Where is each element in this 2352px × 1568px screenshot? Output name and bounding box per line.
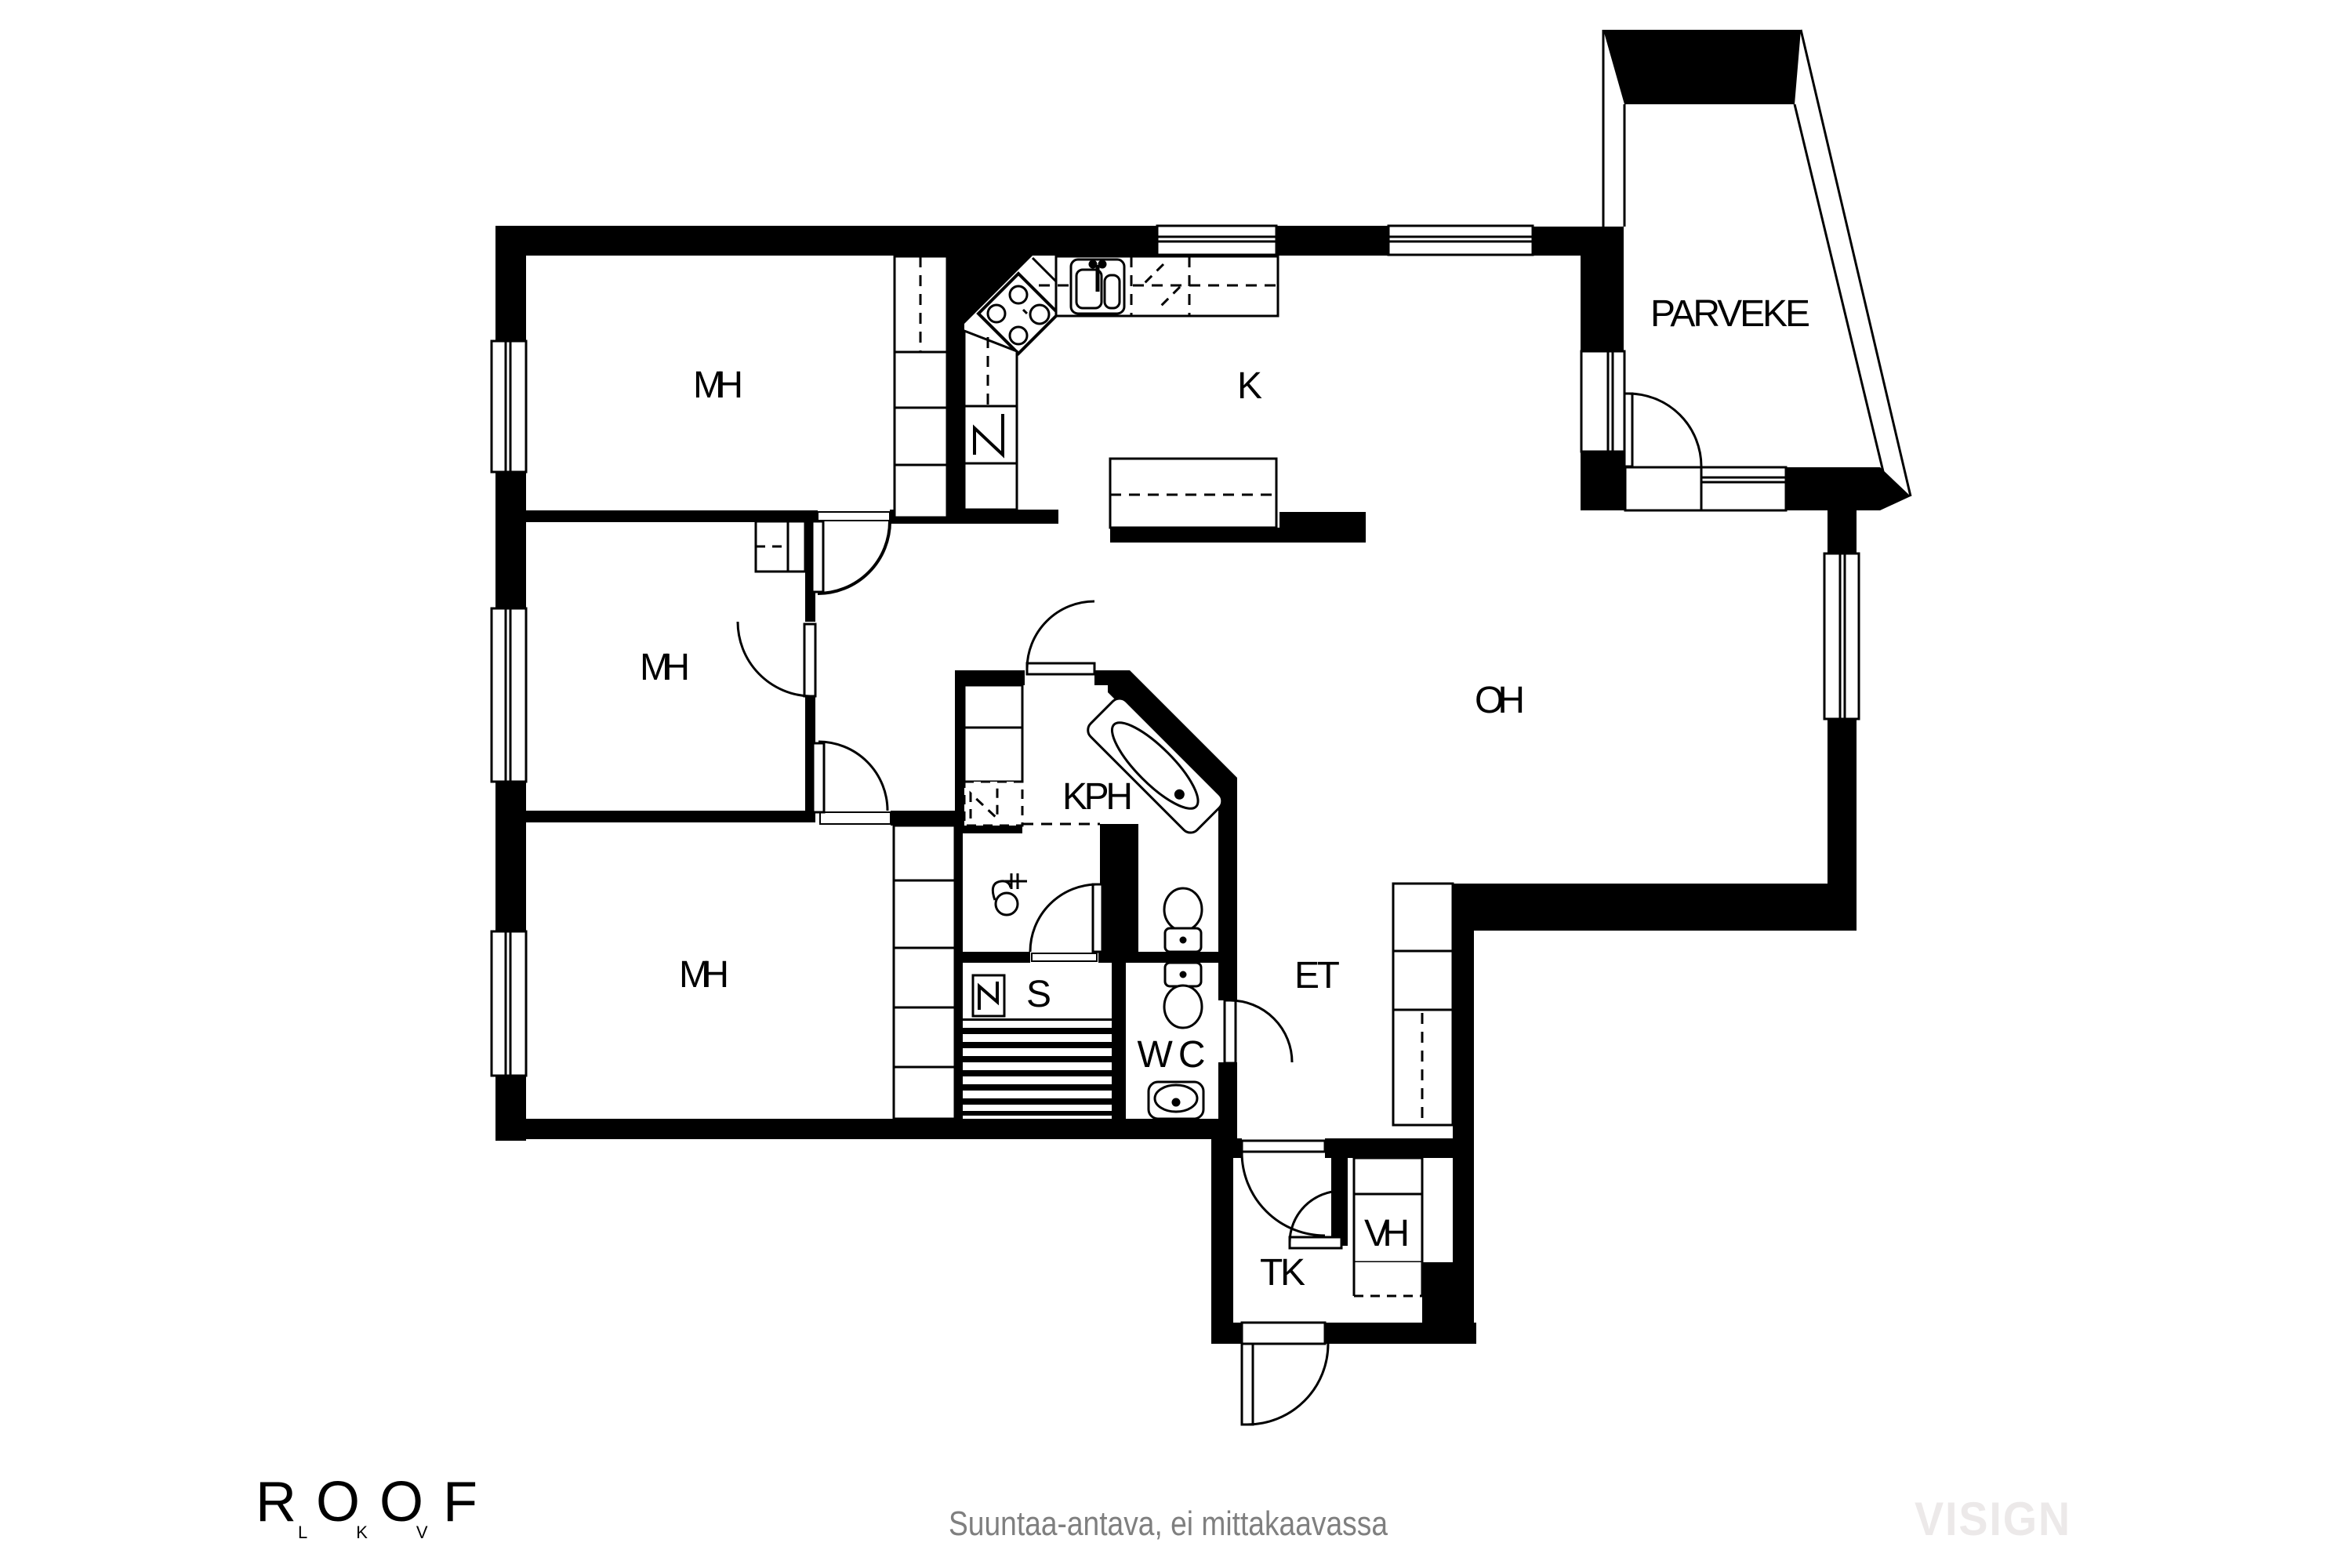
svg-text:OH: OH — [1475, 680, 1525, 721]
svg-text:KPH: KPH — [1062, 776, 1133, 818]
svg-text:VISIGN: VISIGN — [1915, 1493, 2071, 1545]
svg-text:PARVEKE: PARVEKE — [1650, 293, 1810, 335]
svg-text:VH: VH — [1364, 1213, 1410, 1254]
svg-text:ET: ET — [1294, 955, 1340, 996]
svg-text:MH: MH — [640, 647, 690, 688]
svg-text:WC: WC — [1138, 1034, 1206, 1076]
svg-text:K: K — [1237, 365, 1262, 407]
svg-text:Suuntaa-antava, ei mittakaavas: Suuntaa-antava, ei mittakaavassa — [949, 1504, 1388, 1543]
svg-text:LKV: LKV — [298, 1523, 477, 1542]
svg-text:MH: MH — [693, 365, 743, 406]
svg-text:S: S — [1026, 974, 1051, 1015]
svg-text:MH: MH — [679, 954, 729, 996]
svg-text:TK: TK — [1260, 1252, 1305, 1294]
